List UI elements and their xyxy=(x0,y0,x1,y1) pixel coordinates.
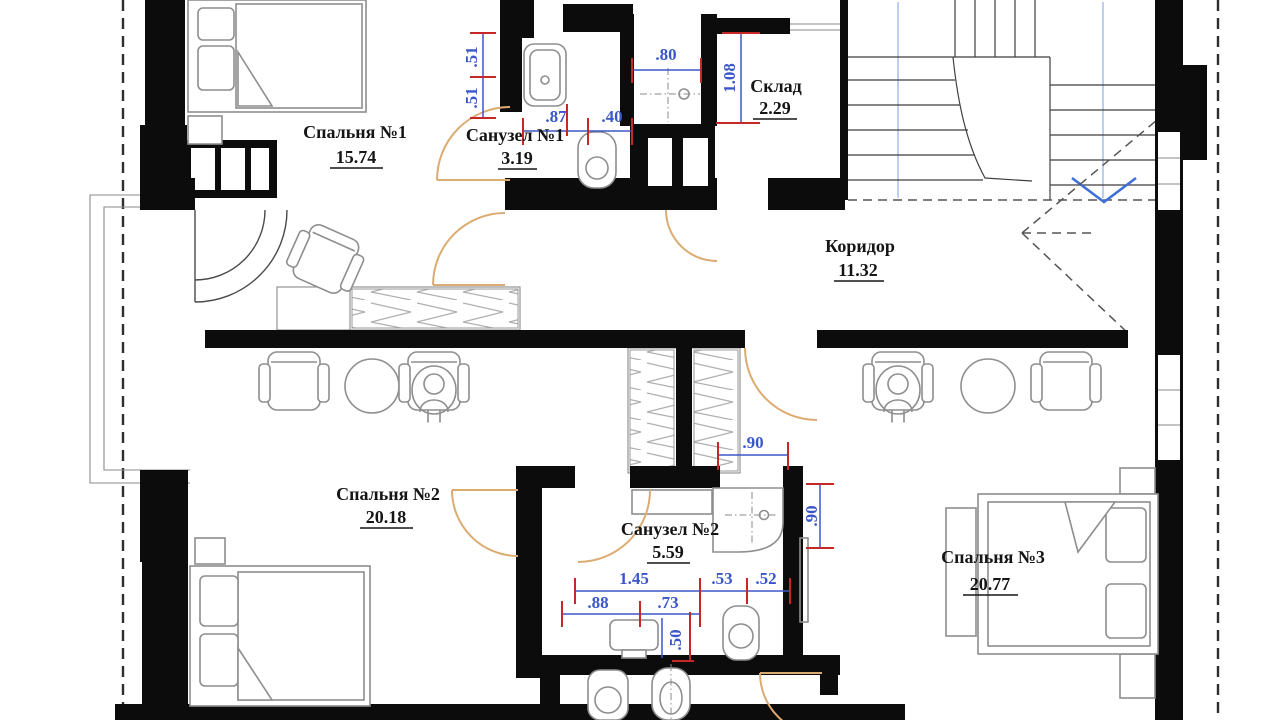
pillow xyxy=(200,576,238,626)
round-table xyxy=(345,359,399,413)
wall-segment xyxy=(701,14,717,126)
door-arc-bedroom2 xyxy=(452,490,518,556)
dim-label: .51 xyxy=(462,87,481,108)
chair-armrest xyxy=(863,364,874,402)
wall-segment xyxy=(205,330,520,348)
wall-segment xyxy=(542,466,575,488)
round-table xyxy=(961,359,1015,413)
wall-segment xyxy=(630,466,720,488)
counter xyxy=(632,490,712,514)
room-area: 3.19 xyxy=(501,148,533,168)
window-pane xyxy=(221,148,245,190)
window-pane xyxy=(251,148,269,190)
roof-slope-dashed-marks xyxy=(1022,120,1157,335)
stair-direction-arrow xyxy=(1072,178,1136,202)
corner-shower xyxy=(713,488,783,552)
chair-armrest xyxy=(259,364,270,402)
door-arc-closet xyxy=(433,213,505,285)
bed-bedroom2 xyxy=(190,538,370,706)
chair-armrest xyxy=(1090,364,1101,402)
armchair xyxy=(259,352,329,410)
pillow xyxy=(198,8,234,40)
dim-label: .88 xyxy=(587,593,608,612)
dim-label: .52 xyxy=(755,569,776,588)
armchair-with-person xyxy=(863,352,933,422)
wall-segment xyxy=(140,470,188,562)
wall-segment xyxy=(768,178,845,210)
wall-segment xyxy=(1183,65,1207,160)
armchair xyxy=(1031,352,1101,410)
wall-segment xyxy=(840,0,848,200)
sink-drain xyxy=(541,76,549,84)
wardrobe-hatch xyxy=(630,350,674,471)
wall-segment xyxy=(142,562,188,720)
stair-stringer-curve xyxy=(953,57,1032,181)
toilet xyxy=(723,606,759,660)
chair-body xyxy=(1040,352,1092,410)
wall-segment xyxy=(520,0,534,38)
door-arc-bedroom3 xyxy=(745,348,817,420)
wall-segment xyxy=(817,330,1128,348)
nightstand xyxy=(188,116,222,144)
dim-label: 1.08 xyxy=(720,63,739,93)
pillow xyxy=(198,46,234,90)
room-area: 2.29 xyxy=(759,98,791,118)
bench xyxy=(946,508,976,636)
room-name: Спальня №3 xyxy=(941,547,1045,567)
dim-label: .40 xyxy=(601,107,622,126)
room-area: 11.32 xyxy=(838,260,878,280)
dim-label: .90 xyxy=(802,505,821,526)
dim-label: 1.45 xyxy=(619,569,649,588)
chair-body xyxy=(268,352,320,410)
wardrobe-hatch xyxy=(694,350,738,471)
room-name: Коридор xyxy=(825,236,895,256)
room-name: Санузел №2 xyxy=(621,519,719,539)
wall-segment xyxy=(715,18,790,34)
dim-label: .53 xyxy=(711,569,732,588)
dim-label: .51 xyxy=(462,46,481,67)
nightstand xyxy=(1120,654,1155,698)
room-area: 20.77 xyxy=(970,574,1011,594)
pillow xyxy=(1106,508,1146,562)
pillow xyxy=(200,634,238,686)
room-name: Спальня №1 xyxy=(303,122,407,142)
pillow xyxy=(1106,584,1146,638)
wall-segment xyxy=(820,655,838,695)
nightstand xyxy=(195,538,225,564)
nightstand xyxy=(1120,468,1155,494)
wardrobe-divider-wall xyxy=(676,348,692,473)
wall-segment xyxy=(140,178,195,210)
closet-hatch xyxy=(352,289,518,328)
room-area: 5.59 xyxy=(652,542,684,562)
wall-segment xyxy=(520,330,745,348)
wall-segment xyxy=(145,0,185,125)
floor-plan-svg: .51 .51 .87 .40 .80 1.08 .90 .90 1.45 .5… xyxy=(0,0,1280,720)
door-arc-storage xyxy=(666,210,717,261)
room-name: Спальня №2 xyxy=(336,484,440,504)
wall-segment xyxy=(516,466,542,678)
room-area: 20.18 xyxy=(366,507,407,527)
person-head xyxy=(424,374,444,394)
floor-plan-page: .51 .51 .87 .40 .80 1.08 .90 .90 1.45 .5… xyxy=(0,0,1280,720)
room-area: 15.74 xyxy=(336,147,377,167)
chair-armrest xyxy=(318,364,329,402)
roof-slope-line xyxy=(1022,233,1130,335)
balcony-outer-outline xyxy=(90,195,190,483)
roof-slope-line xyxy=(1022,120,1157,233)
window-pane xyxy=(1158,132,1180,210)
chair-armrest xyxy=(1031,364,1042,402)
dim-label: .80 xyxy=(655,45,676,64)
armchair-with-person xyxy=(399,352,469,422)
balcony-inner-outline xyxy=(104,207,190,470)
room-name: Санузел №1 xyxy=(466,125,564,145)
sink-pedestal xyxy=(622,650,646,658)
room-name: Склад xyxy=(750,76,802,96)
staircase xyxy=(848,0,1155,202)
dim-label: .73 xyxy=(657,593,678,612)
wall-segment xyxy=(500,0,522,112)
person-head xyxy=(888,374,908,394)
chair-armrest xyxy=(399,364,410,402)
chair-armrest xyxy=(458,364,469,402)
corridor-closet xyxy=(277,287,520,330)
window-pane xyxy=(1158,355,1180,460)
dim-label: .50 xyxy=(666,629,685,650)
dim-label: .87 xyxy=(545,107,567,126)
vent-pane xyxy=(683,138,708,186)
door-arc-balcony-outer xyxy=(195,210,287,302)
door-arc-balcony-inner xyxy=(195,210,265,280)
vent-pane xyxy=(648,138,672,186)
sink xyxy=(610,620,658,650)
dim-label: .90 xyxy=(742,433,763,452)
chair-armrest xyxy=(922,364,933,402)
